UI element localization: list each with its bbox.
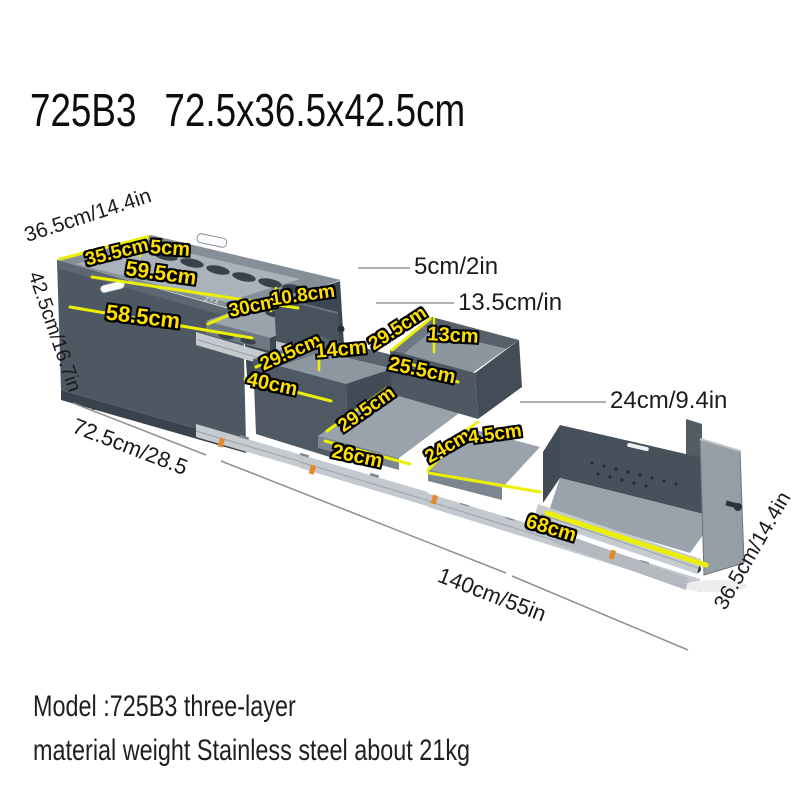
material-description: material weight Stainless steel about 21…	[33, 734, 470, 768]
model-number: 725B3	[30, 84, 136, 136]
model-description: Model :725B3 three-layer	[33, 690, 296, 724]
product-listing-image: ZYX	[0, 0, 800, 800]
bottom-tray	[534, 419, 747, 592]
page-title: 725B372.5x36.5x42.5cm	[30, 83, 465, 137]
overall-dimensions: 72.5x36.5x42.5cm	[164, 84, 465, 136]
